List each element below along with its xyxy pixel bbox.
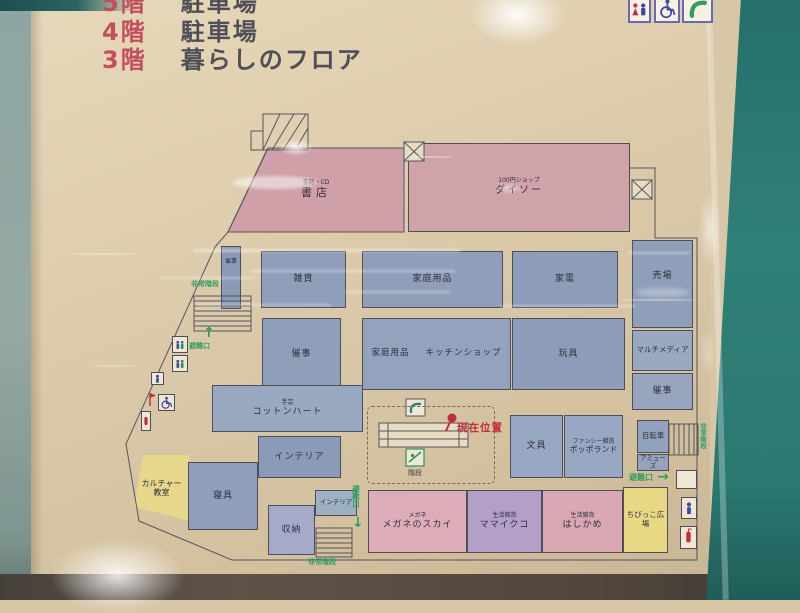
elevator-icon xyxy=(172,355,188,372)
area-name: 家庭用品 xyxy=(412,274,452,284)
area-daiso: 100円ショップ ダイソー xyxy=(408,143,630,232)
area-mamaikuko: 生活雑貨 ママイクコ xyxy=(467,490,542,553)
down-arrow-icon: ↓ xyxy=(352,516,364,530)
area-megane-no-sky: メガネ メガネのスカイ xyxy=(368,490,467,553)
emergency-stairs-label-bottom: 非常階段 xyxy=(308,559,336,566)
elevator-icon xyxy=(172,336,188,353)
area-name: インテリア xyxy=(274,452,324,462)
area-sales-floor: 売場 xyxy=(632,240,693,328)
area-name: カルチャー教室 xyxy=(140,479,184,497)
area-interior-2: インテリア xyxy=(315,490,357,516)
evacuation-exit-label-right: 避難口 xyxy=(629,474,653,482)
area-name: はしかめ xyxy=(562,520,602,530)
area-name: アミューズ xyxy=(638,455,668,470)
facility-box xyxy=(676,470,697,489)
restroom-icon xyxy=(628,0,651,23)
area-name: 家電 xyxy=(555,274,575,284)
fire-equipment-icon xyxy=(141,411,151,431)
area-name: マルチメディア xyxy=(637,346,689,355)
fire-equipment-icon xyxy=(148,392,156,407)
area-category: 生活雑貨 xyxy=(492,513,516,520)
photo-frame-bottom xyxy=(0,574,800,600)
area-name: 書店 xyxy=(301,187,331,200)
area-name: ママイクコ xyxy=(480,520,530,530)
floor-label: 暮らしのフロア xyxy=(181,46,363,74)
area-name: 売場 xyxy=(652,271,672,281)
wheelchair-icon xyxy=(158,394,175,411)
area-name: コットンハート xyxy=(252,407,322,417)
area-zakka: 雑貨 xyxy=(261,251,346,308)
area-poppo-land: ファンシー雑貨 ポッポランド xyxy=(564,415,623,478)
area-household-1: 家庭用品 xyxy=(362,251,503,308)
restroom-icon xyxy=(681,497,697,519)
area-category: ファンシー雑貨 xyxy=(572,439,614,446)
area-category: 生活雑貨 xyxy=(570,513,594,520)
area-name: ダイソー xyxy=(495,185,543,197)
area-event-right: 催事 xyxy=(632,373,693,410)
area-name-2: キッチンショップ xyxy=(426,349,502,359)
area-event-strip: 催事 xyxy=(221,246,241,309)
evacuation-exit-label-center: 避難口 xyxy=(352,485,360,517)
floor-row-3f: 3階暮らしのフロア xyxy=(102,40,363,75)
area-toys: 玩具 xyxy=(512,318,625,390)
fire-equipment-icon xyxy=(680,526,697,549)
area-bicycle: 自転車 xyxy=(637,420,669,453)
area-name: 催事 xyxy=(652,386,672,396)
area-multimedia: マルチメディア xyxy=(632,330,693,371)
area-name: 家庭用品 xyxy=(371,349,409,359)
right-arrow-icon: → xyxy=(657,470,669,484)
emergency-stairs-label-right: 非常階段 xyxy=(699,423,706,459)
phone-icon xyxy=(682,0,713,23)
area-household-2: 家庭用品 キッチンショップ xyxy=(362,318,511,390)
poster-crease-shadow xyxy=(31,0,43,578)
stairs-label-center: 階段 xyxy=(398,468,432,478)
current-location-label: 現在位置 xyxy=(457,420,503,435)
area-category: メガネ xyxy=(408,513,426,520)
area-storage: 収納 xyxy=(268,505,315,555)
area-name: 催事 xyxy=(225,259,237,266)
area-name: インテリア xyxy=(320,499,353,506)
area-hashikame: 生活雑貨 はしかめ xyxy=(542,490,623,553)
area-name: ポッポランド xyxy=(570,445,618,454)
area-cotton-heart: 手芸 コットンハート xyxy=(212,385,363,432)
area-name: 雑貨 xyxy=(293,274,313,284)
wheelchair-icon xyxy=(654,0,680,23)
area-interior-1: インテリア xyxy=(258,436,341,478)
area-name: メガネのスカイ xyxy=(382,520,452,530)
area-stationery: 文具 xyxy=(510,415,563,478)
area-name: 寝具 xyxy=(213,491,233,501)
area-kids-plaza: ちびっこ広場 xyxy=(623,487,668,553)
area-name: 文具 xyxy=(526,441,546,451)
emergency-stairs-label-left: 非常階段 xyxy=(191,281,219,288)
area-name: 自転車 xyxy=(642,432,665,441)
photo-frame-left xyxy=(0,0,31,600)
area-name: 収納 xyxy=(281,525,301,535)
restroom-icon xyxy=(151,372,164,385)
up-arrow-icon: ↑ xyxy=(203,326,215,340)
area-appliances: 家電 xyxy=(512,251,618,308)
area-bedding: 寝具 xyxy=(188,462,258,530)
area-name: ちびっこ広場 xyxy=(624,511,667,528)
floor-number: 3階 xyxy=(102,46,147,74)
evacuation-exit-label-left: 避難口 xyxy=(189,343,210,350)
area-category: 手芸 xyxy=(281,400,293,407)
area-name: 玩具 xyxy=(558,349,578,359)
area-name: 催事 xyxy=(291,349,311,359)
area-event-2: 催事 xyxy=(262,318,341,390)
